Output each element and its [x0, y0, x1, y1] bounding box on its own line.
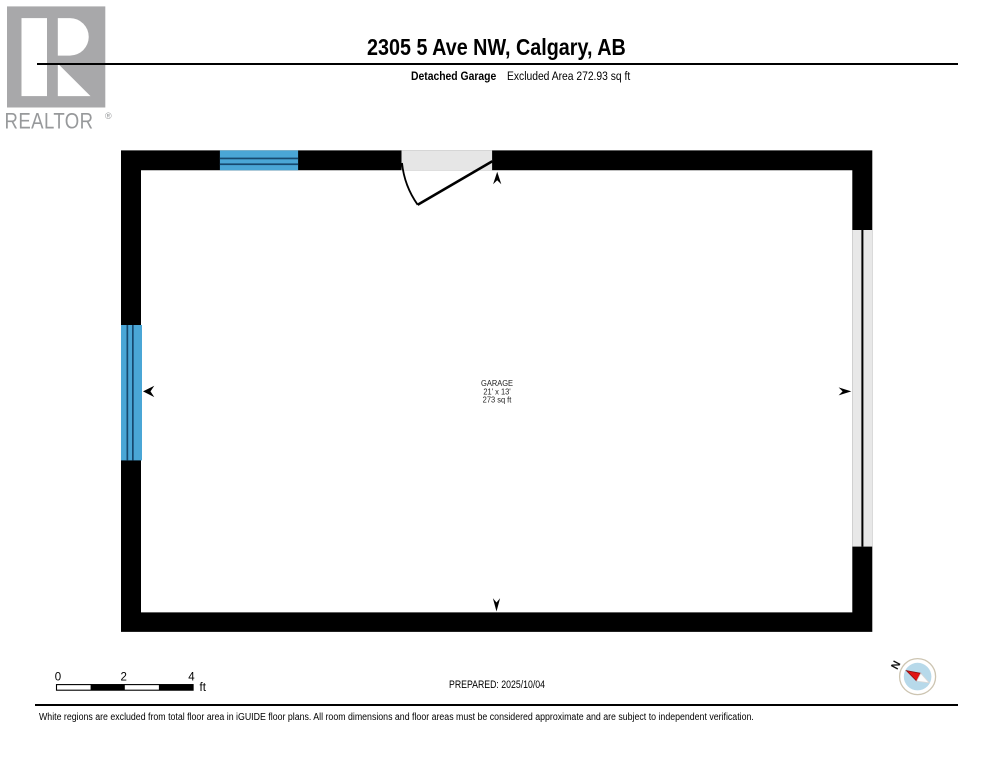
svg-text:273 sq ft: 273 sq ft — [483, 395, 512, 405]
svg-text:4: 4 — [188, 672, 195, 684]
svg-text:0: 0 — [55, 672, 61, 684]
svg-text:®: ® — [105, 111, 112, 121]
svg-text:2: 2 — [120, 672, 126, 684]
svg-text:ft: ft — [200, 682, 207, 694]
svg-text:REALTOR: REALTOR — [4, 110, 93, 134]
